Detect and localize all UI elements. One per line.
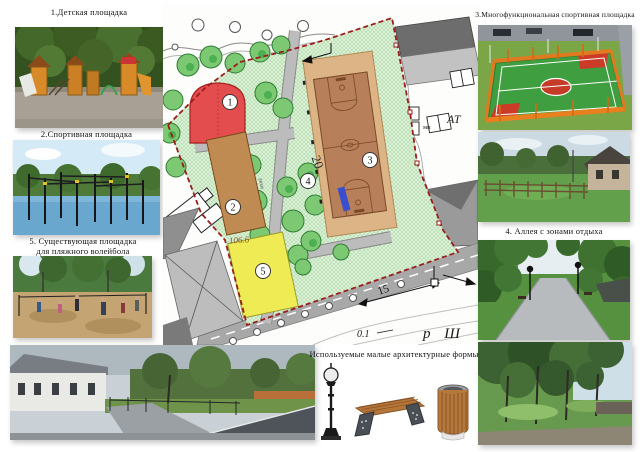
zone1-number: 1 [228, 98, 233, 109]
caption-children-playground: 1.Детская площадка [15, 7, 163, 17]
photo-workout-ground [13, 140, 160, 235]
site-plan: мн АТ [163, 5, 478, 345]
park-photo-graphic [478, 342, 632, 445]
zone5-number: 5 [261, 267, 266, 278]
presentation-board: 1.Детская площадка 2.Спортивная площадка [0, 0, 640, 452]
lamp-icon [318, 362, 344, 442]
slope-label: 0.1 [357, 329, 370, 340]
maf-bench [350, 388, 430, 438]
photo-children-playground [15, 27, 163, 128]
zone2-number: 2 [231, 203, 236, 214]
photo-multifunctional-court [478, 25, 632, 130]
caption-alley: 4. Аллея с зонами отдыха [478, 226, 630, 236]
elevation-label: 106.6 [229, 234, 250, 245]
panorama-photo-graphic [10, 345, 315, 440]
site-plan-drawing: мн АТ [163, 5, 478, 345]
alley-photo-graphic [478, 240, 630, 340]
photo-alley-render [478, 240, 630, 340]
outbuilding-1 [450, 68, 474, 88]
workout-photo-graphic [13, 140, 160, 235]
caption-sports-ground: 2.Спортивная площадка [13, 129, 160, 139]
maf-trash-bin [432, 380, 474, 442]
caption-multifunctional: 3.Многофункциональная спортивная площадк… [472, 10, 638, 20]
photo-street-panorama [10, 345, 315, 440]
photo-volleyball-court [13, 256, 152, 338]
caption-volleyball-line1: 5. Существующая площадка [8, 236, 158, 246]
caption-maf: Используемые малые архитектурные формы [303, 349, 485, 359]
court-photo-graphic [478, 25, 632, 130]
street-label: р Ш [422, 326, 465, 342]
caption-volleyball-line2: для пляжного волейбола [8, 246, 158, 256]
cadastral-label-small: мн [423, 124, 431, 131]
photo-existing-field [478, 132, 630, 222]
maf-lamp-post [318, 362, 344, 442]
bench-icon [350, 388, 430, 438]
trash-bin-icon [432, 380, 474, 442]
playground-photo-graphic [15, 27, 163, 128]
cadastral-label-large: АТ [446, 112, 462, 126]
zone3-number: 3 [368, 156, 373, 167]
volleyball-photo-graphic [13, 256, 152, 338]
zone4-number: 4 [306, 177, 311, 188]
photo-park [478, 342, 632, 445]
field-photo-graphic [478, 132, 630, 222]
